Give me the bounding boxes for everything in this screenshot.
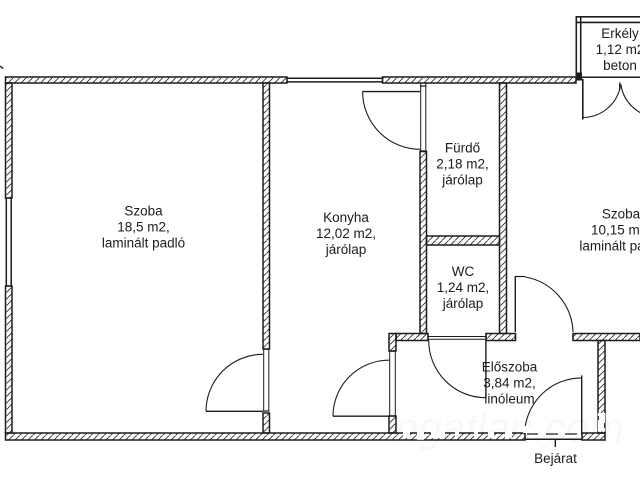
svg-text:járólap: járólap — [442, 296, 484, 311]
svg-text:18,5 m2,: 18,5 m2, — [117, 220, 170, 235]
svg-text:ingatlan.com: ingatlan.com — [386, 404, 624, 451]
svg-text:Szoba: Szoba — [124, 204, 163, 219]
svg-text:1,24 m2,: 1,24 m2, — [437, 280, 490, 295]
svg-text:3,84 m2,: 3,84 m2, — [483, 376, 536, 391]
svg-text:Szoba: Szoba — [602, 207, 640, 222]
svg-text:12,02 m2,: 12,02 m2, — [316, 226, 376, 241]
svg-text:1,12 m2: 1,12 m2 — [596, 42, 640, 57]
svg-text:Fürdő: Fürdő — [445, 141, 480, 156]
svg-text:2,18 m2,: 2,18 m2, — [436, 157, 489, 172]
svg-text:laminált padló: laminált padló — [102, 236, 185, 251]
svg-text:beton: beton — [603, 58, 637, 73]
svg-text:járólap: járólap — [441, 173, 483, 188]
svg-text:laminált padló: laminált padló — [579, 239, 640, 254]
svg-text:Erkély: Erkély — [601, 26, 639, 41]
svg-text:járólap: járólap — [325, 242, 367, 257]
svg-text:Konyha: Konyha — [323, 210, 369, 225]
svg-text:linóleum: linóleum — [484, 392, 534, 407]
svg-text:Előszoba: Előszoba — [482, 360, 538, 375]
svg-text:Bejárat: Bejárat — [534, 451, 577, 466]
svg-text:10,15 m2,: 10,15 m2, — [591, 223, 640, 238]
svg-text:WC: WC — [452, 264, 475, 279]
